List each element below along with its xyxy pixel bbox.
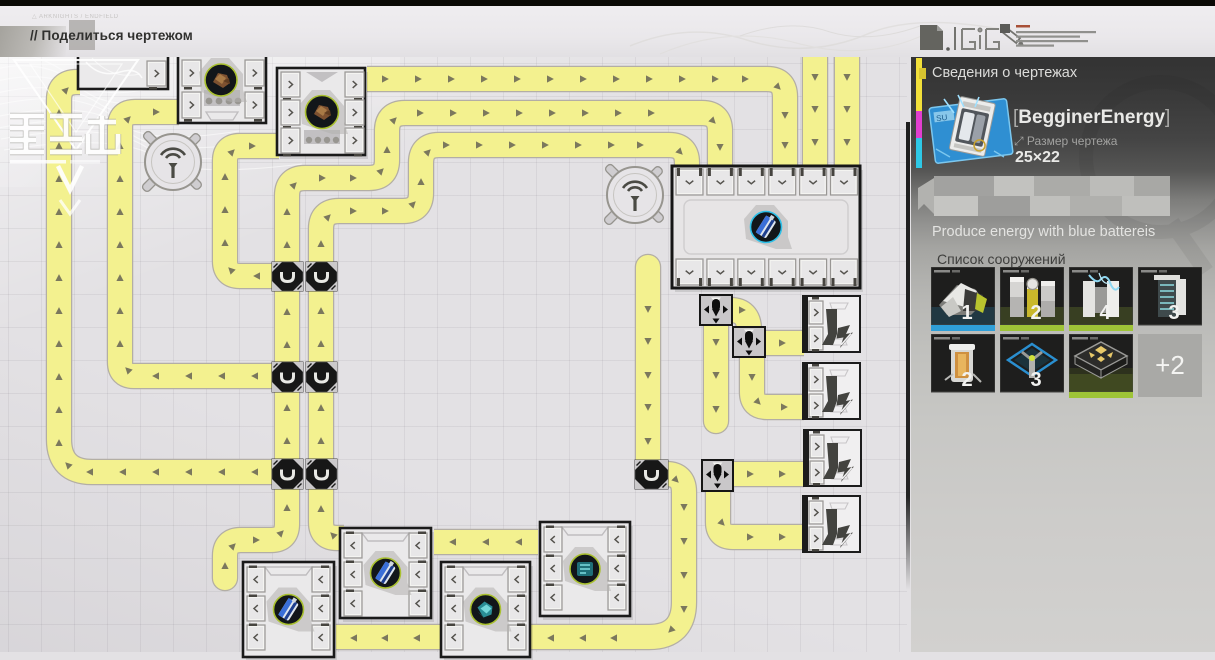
svg-text:4: 4 <box>1099 302 1111 324</box>
svg-text:2: 2 <box>961 369 972 391</box>
svg-text:SU: SU <box>936 113 948 123</box>
svg-text:2: 2 <box>1030 302 1041 324</box>
svg-text:3: 3 <box>1168 302 1179 324</box>
svg-text:3: 3 <box>1030 369 1041 391</box>
svg-text:1: 1 <box>961 302 972 324</box>
